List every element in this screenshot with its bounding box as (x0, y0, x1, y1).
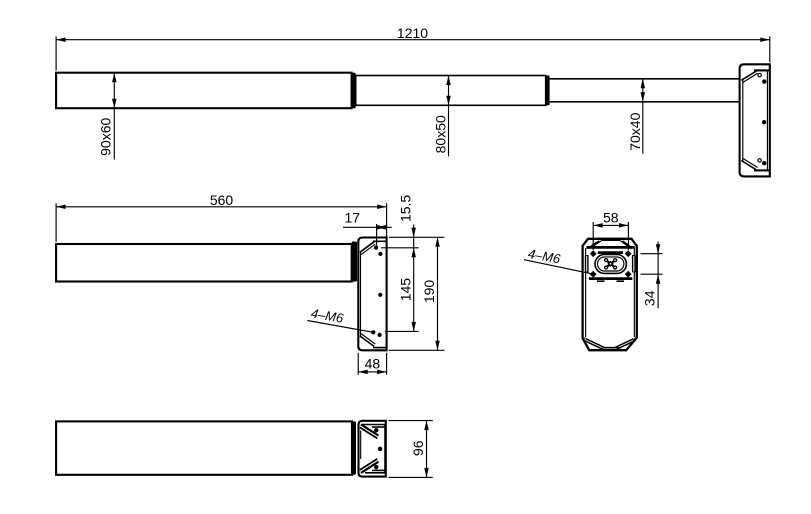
svg-text:1210: 1210 (397, 25, 428, 41)
svg-text:34: 34 (642, 290, 658, 306)
svg-text:96: 96 (410, 440, 426, 456)
svg-text:58: 58 (603, 210, 619, 226)
svg-text:17: 17 (345, 210, 361, 226)
svg-text:48: 48 (365, 355, 381, 371)
svg-text:560: 560 (210, 192, 234, 208)
svg-text:15.5: 15.5 (397, 195, 413, 222)
svg-text:90x60: 90x60 (98, 118, 114, 156)
svg-text:145: 145 (397, 278, 413, 302)
svg-text:190: 190 (421, 280, 437, 304)
svg-text:70x40: 70x40 (627, 112, 643, 150)
svg-text:80x50: 80x50 (432, 115, 448, 153)
